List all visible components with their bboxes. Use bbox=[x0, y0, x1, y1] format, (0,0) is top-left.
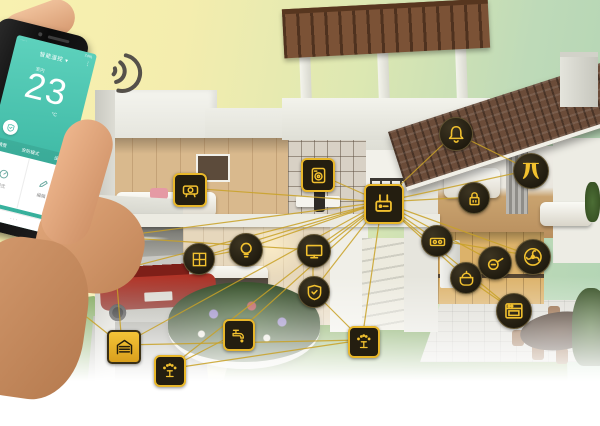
irrigation-tap-icon bbox=[223, 319, 255, 351]
security-panel-icon bbox=[298, 276, 330, 308]
ventilation-fan-icon bbox=[515, 239, 551, 275]
smart-tv-icon bbox=[297, 234, 331, 268]
power-strip-icon bbox=[421, 225, 453, 257]
edit-label: 编辑 bbox=[36, 192, 46, 200]
shield-badge bbox=[1, 118, 19, 136]
phone-front-camera bbox=[38, 32, 43, 37]
app-title: 智能温控 bbox=[39, 52, 64, 64]
status-left: ····· bbox=[20, 37, 28, 43]
temperature-value: 23 bbox=[2, 62, 90, 117]
oven-icon bbox=[496, 293, 532, 329]
ceiling-light-icon bbox=[229, 233, 263, 267]
bedroom-camera-icon bbox=[173, 173, 207, 207]
status-right: 74% bbox=[84, 53, 93, 60]
floor-vent-icon bbox=[183, 243, 215, 275]
rice-cooker-icon bbox=[450, 262, 482, 294]
dial-icon bbox=[0, 166, 12, 182]
garage-door-icon bbox=[107, 330, 141, 364]
door-lock-icon bbox=[458, 182, 490, 214]
smart-home-scene: ····· 74% 智能温控 ▾ ⋮ 室内 23 °C 情景 安防模式 设置 bbox=[0, 0, 600, 426]
menu-item-scenes[interactable]: 情景 bbox=[0, 141, 8, 149]
study-appliance-icon bbox=[301, 158, 335, 192]
chevron-down-icon: ▾ bbox=[64, 58, 69, 65]
wifi-waves-icon bbox=[100, 46, 155, 103]
cooktop-icon bbox=[478, 246, 512, 280]
garden-watering-icon bbox=[154, 355, 186, 387]
temperature-unit: °C bbox=[51, 111, 58, 118]
gateway-hub-icon bbox=[364, 184, 404, 224]
mode-label: 模式 bbox=[0, 182, 6, 190]
curtain-control-icon bbox=[513, 153, 549, 189]
lawn-sprinkler-icon bbox=[348, 326, 380, 358]
menu-item-security[interactable]: 安防模式 bbox=[21, 147, 40, 157]
doorbell-icon bbox=[439, 117, 473, 151]
